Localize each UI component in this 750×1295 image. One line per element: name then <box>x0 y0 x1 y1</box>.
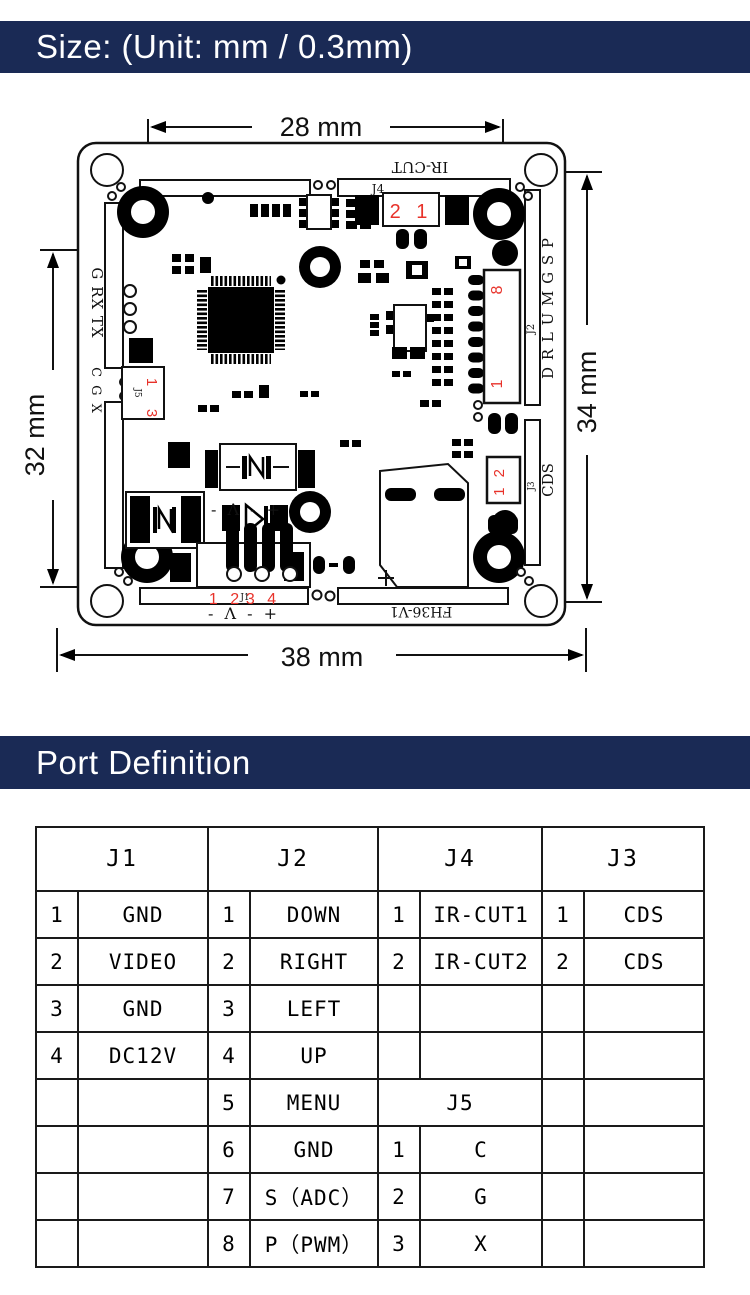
cell <box>584 1126 704 1173</box>
capacitor-symbol-lower <box>126 492 204 548</box>
table-row: 8P（PWM） 3X <box>36 1220 704 1267</box>
cell: DC12V <box>78 1032 208 1079</box>
group-header-j4: J4 <box>378 827 542 891</box>
cell: C <box>420 1126 542 1173</box>
cell <box>542 1079 584 1126</box>
group-header-j1: J1 <box>36 827 208 891</box>
j2-silk-label: J2 <box>526 324 537 335</box>
table-row: 7S（ADC） 2G <box>36 1173 704 1220</box>
osd-pins-silk-label: D R L U M G S P <box>539 237 557 379</box>
cell <box>584 985 704 1032</box>
capacitor-symbol-upper <box>205 444 315 490</box>
cell: 2 <box>542 938 584 985</box>
cell <box>542 1032 584 1079</box>
group-header-j3: J3 <box>542 827 704 891</box>
component-window-2 <box>459 259 467 266</box>
page: Size: (Unit: mm / 0.3mm) 28 mm 32 mm <box>0 0 750 1295</box>
j4-pin-numbers: 2 1 <box>390 201 433 223</box>
polarity-upper-silk: - Λ - + <box>211 500 283 519</box>
table-row: 3GND 3LEFT <box>36 985 704 1032</box>
soic-chip-top <box>299 195 339 229</box>
table-row: 2VIDEO 2RIGHT 2IR-CUT2 2CDS <box>36 938 704 985</box>
cell <box>78 1126 208 1173</box>
port-header-bar: Port Definition <box>0 736 750 789</box>
cell: 2 <box>36 938 78 985</box>
cell <box>78 1220 208 1267</box>
cell: 4 <box>208 1032 250 1079</box>
cell: 1 <box>542 891 584 938</box>
dim-bottom-label: 38 mm <box>281 642 364 672</box>
cell <box>420 985 542 1032</box>
cell: 5 <box>208 1079 250 1126</box>
cell: 4 <box>36 1032 78 1079</box>
cell: MENU <box>250 1079 378 1126</box>
cell: DOWN <box>250 891 378 938</box>
cell <box>584 1032 704 1079</box>
cell: GND <box>78 985 208 1032</box>
size-header-title: Size: (Unit: mm / 0.3mm) <box>36 28 413 66</box>
j5-pin-bottom: 3 <box>143 409 160 417</box>
cell: 6 <box>208 1126 250 1173</box>
uart-silk-label: G RX TX <box>88 267 106 338</box>
j1-silk-label: J1 <box>239 593 249 603</box>
cell: 1 <box>378 891 420 938</box>
dimension-bottom: 38 mm <box>57 628 586 672</box>
cell: LEFT <box>250 985 378 1032</box>
j3-pin-numbers: 1 2 <box>491 466 508 496</box>
cell <box>542 1126 584 1173</box>
cell <box>584 1173 704 1220</box>
port-header-title: Port Definition <box>36 744 251 782</box>
cell: G <box>420 1173 542 1220</box>
cell <box>584 1220 704 1267</box>
j5-connector: 1 3 J5 <box>122 367 164 419</box>
cell <box>542 985 584 1032</box>
table-row: 6GND 1C <box>36 1126 704 1173</box>
cell: 2 <box>378 1173 420 1220</box>
cell: S（ADC） <box>250 1173 378 1220</box>
cell <box>378 985 420 1032</box>
cell <box>36 1173 78 1220</box>
cgx-silk-label: C G X <box>88 367 103 415</box>
j2-pin-top: 8 <box>489 285 506 294</box>
cds-silk-label: CDS <box>539 463 557 497</box>
table-row: 5MENU J5 <box>36 1079 704 1126</box>
j5-merged-cell: J5 <box>378 1079 542 1126</box>
cell <box>378 1032 420 1079</box>
cell: X <box>420 1220 542 1267</box>
cell: CDS <box>584 891 704 938</box>
cell: 3 <box>36 985 78 1032</box>
cell: 2 <box>378 938 420 985</box>
cell <box>36 1220 78 1267</box>
table-row: 4DC12V 4UP <box>36 1032 704 1079</box>
cell <box>78 1079 208 1126</box>
j5-pin-top: 1 <box>143 378 160 386</box>
cell: 2 <box>208 938 250 985</box>
group-header-j2: J2 <box>208 827 378 891</box>
cell: 1 <box>208 891 250 938</box>
dimension-left: 32 mm <box>20 250 78 587</box>
j2-pin-bottom: 1 <box>489 379 506 388</box>
cell <box>584 1079 704 1126</box>
cell: P（PWM） <box>250 1220 378 1267</box>
video-transformer <box>378 464 468 587</box>
cell <box>420 1032 542 1079</box>
board-name-silk: FH36-V1 <box>390 603 452 619</box>
port-definition-table: J1 J2 J4 J3 1GND 1DOWN 1IR-CUT1 1CDS 2VI… <box>35 826 705 1268</box>
dim-right-label: 34 mm <box>572 351 602 434</box>
cell: CDS <box>584 938 704 985</box>
polarity-lower-silk: - Λ - + <box>208 604 280 623</box>
cell <box>542 1220 584 1267</box>
cell <box>36 1126 78 1173</box>
j5-silk-label: J5 <box>132 387 142 398</box>
cell: 3 <box>208 985 250 1032</box>
cell: 8 <box>208 1220 250 1267</box>
cell <box>36 1079 78 1126</box>
cell: 1 <box>378 1126 420 1173</box>
table-header-row: J1 J2 J4 J3 <box>36 827 704 891</box>
cell: VIDEO <box>78 938 208 985</box>
cell <box>78 1173 208 1220</box>
dim-top-label: 28 mm <box>280 112 363 142</box>
size-header-bar: Size: (Unit: mm / 0.3mm) <box>0 21 750 73</box>
cell: IR-CUT1 <box>420 891 542 938</box>
dim-left-label: 32 mm <box>20 394 50 477</box>
j3-silk-label: J3 <box>527 481 537 492</box>
component-window <box>412 265 422 275</box>
main-chip <box>202 276 286 360</box>
cell: 7 <box>208 1173 250 1220</box>
cell: IR-CUT2 <box>420 938 542 985</box>
cell: RIGHT <box>250 938 378 985</box>
sot-chip-center <box>386 305 434 359</box>
table-row: 1GND 1DOWN 1IR-CUT1 1CDS <box>36 891 704 938</box>
j4-silk-label: J4 <box>370 182 385 196</box>
pcb-diagram: 28 mm 32 mm 34 mm 38 mm <box>0 95 750 675</box>
cell: UP <box>250 1032 378 1079</box>
cell <box>542 1173 584 1220</box>
cell: GND <box>78 891 208 938</box>
cell: GND <box>250 1126 378 1173</box>
cell: 3 <box>378 1220 420 1267</box>
ircut-silk-label: IR-CUT <box>392 158 448 176</box>
cell: 1 <box>36 891 78 938</box>
